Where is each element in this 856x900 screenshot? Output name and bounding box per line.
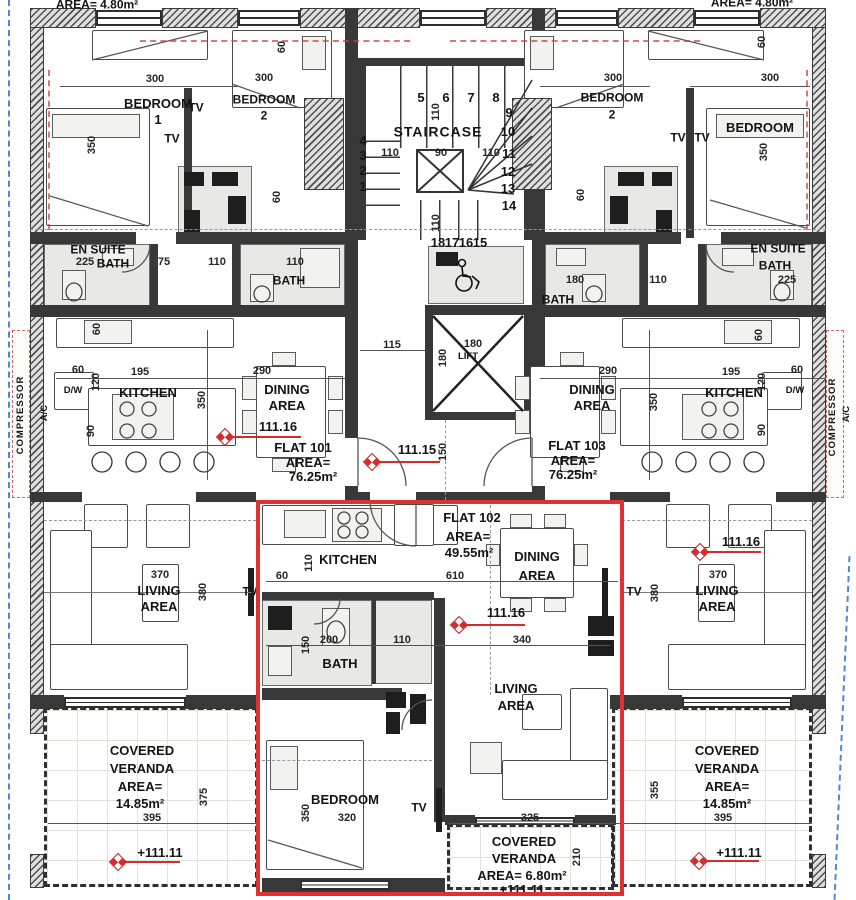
stair-step-number: 2 [359, 164, 366, 178]
wall [640, 244, 648, 310]
dim-label: 115 [383, 340, 401, 352]
dim-label: 60 [791, 365, 803, 377]
insulation-dash [450, 40, 700, 42]
dim-label: 395 [143, 813, 161, 825]
stair-step-number: 3 [359, 149, 366, 163]
stair-step-number: 17 [445, 236, 459, 250]
appliance [436, 252, 458, 266]
dim-label: 370 [151, 570, 169, 582]
room-label-living: LIVING [695, 584, 738, 598]
veranda-corner-pier [30, 854, 44, 888]
dim-label: 60 [72, 365, 84, 377]
wall [176, 232, 345, 244]
wall-core-left [345, 8, 358, 438]
dim-label: 60 [92, 323, 104, 335]
sofa [50, 644, 188, 690]
property-boundary-right [833, 556, 850, 900]
dim-label: 290 [253, 366, 271, 378]
flat-name-label: FLAT 101 [274, 441, 332, 455]
wall [776, 492, 826, 502]
dim-label: 120 [91, 373, 103, 391]
stair-step-number: 13 [501, 182, 515, 196]
dim-label: 195 [722, 367, 740, 379]
room-label-veranda: VERANDA [110, 762, 174, 776]
elevation-marker-line [378, 461, 440, 463]
elevation-marker-line [706, 551, 761, 553]
dim-line [60, 86, 240, 87]
appliance [212, 172, 238, 186]
room-label-bedroom: BEDROOM [726, 121, 794, 135]
wall-pier [618, 8, 694, 28]
wall [545, 305, 826, 317]
level-label: 111.16 [722, 535, 760, 549]
chair [328, 376, 343, 400]
level-label: +111.11 [137, 846, 182, 860]
flat102-boundary [256, 500, 624, 896]
veranda-door-window [682, 697, 792, 708]
room-label-bedroom1: BEDROOM [124, 97, 192, 111]
wall-pier [300, 8, 420, 28]
stair-step-number: 16 [459, 236, 473, 250]
chair [515, 376, 530, 400]
dim-label: 110 [381, 148, 399, 160]
window [556, 10, 618, 26]
dim-label: 180 [464, 339, 482, 351]
chair [272, 352, 296, 366]
room-label-ensuite: BATH [97, 258, 129, 271]
wall-pier [486, 8, 556, 28]
wall [196, 492, 256, 502]
chair [515, 410, 530, 434]
dim-label: 60 [576, 189, 588, 201]
room-label-living: AREA [699, 600, 736, 614]
elevation-marker-line [231, 436, 301, 438]
ac-label-left: A/C [40, 405, 50, 421]
armchair [666, 504, 710, 548]
tv-label: TV [670, 132, 685, 145]
stair-step-number: 7 [467, 91, 474, 105]
room-label-ensuite: EN SUITE [750, 243, 805, 256]
dim-label: 380 [198, 583, 210, 601]
elevation-marker-line [124, 861, 180, 863]
flat-area-value: 76.25m² [289, 470, 337, 484]
compressor-label-right: COMPRESSOR [828, 378, 838, 457]
stair-step-number: 10 [501, 125, 515, 139]
dim-label: 300 [146, 74, 164, 86]
appliance [618, 172, 644, 186]
stair-step-number: 12 [501, 165, 515, 179]
dim-label: 350 [759, 143, 771, 161]
room-label-veranda: AREA= [118, 780, 162, 794]
dishwasher-label: D/W [64, 386, 82, 396]
room-label-dining: DINING [569, 383, 615, 397]
wall [698, 244, 706, 310]
dim-label: 380 [650, 584, 662, 602]
dim-label: 90 [757, 424, 769, 436]
bed-pillow [52, 114, 140, 138]
dim-label: 110 [208, 257, 226, 269]
room-label-kitchen: KITCHEN [705, 386, 763, 400]
stove [682, 394, 744, 440]
exterior-wall-left [30, 8, 44, 702]
stair-step-number: 14 [502, 199, 516, 213]
wall-veranda-pier [186, 695, 258, 709]
room-label-living: AREA [141, 600, 178, 614]
flat-area-label: AREA= [551, 454, 595, 468]
dim-label: 290 [599, 366, 617, 378]
dim-label: 350 [197, 391, 209, 409]
wall-pier [760, 8, 826, 28]
dim-label: 300 [761, 73, 779, 85]
chair [242, 410, 257, 434]
stair-step-number: 4 [359, 134, 366, 148]
stair-step-number: 18 [431, 236, 445, 250]
tv-label: TV [626, 586, 641, 599]
tv-label: TV [188, 102, 203, 115]
room-label-kitchen: KITCHEN [119, 386, 177, 400]
dim-label: 150 [438, 443, 450, 461]
wall [150, 244, 158, 310]
dim-label: 110 [649, 275, 667, 287]
level-label: 111.15 [398, 443, 436, 457]
stair-step-number: 6 [442, 91, 449, 105]
veranda-corner-pier [812, 854, 826, 888]
tv-label: TV [694, 132, 709, 145]
dim-label: 60 [757, 36, 769, 48]
wall-veranda-pier [792, 695, 826, 709]
wall-bedroom-divider-right [686, 88, 694, 238]
chair [560, 352, 584, 366]
lift-label: LIFT [458, 352, 478, 362]
dim-line [540, 86, 650, 87]
insulation-dash [48, 70, 50, 230]
dim-label: 225 [76, 257, 94, 269]
dim-label: 355 [650, 781, 662, 799]
toilet [250, 274, 274, 302]
site-area-note-right: AREA= 4.80m² [711, 0, 793, 9]
stair-step-number: 5 [417, 91, 424, 105]
flat-area-value: 76.25m² [549, 468, 597, 482]
appliance [652, 172, 672, 186]
dim-label: 110 [482, 148, 500, 160]
toilet [582, 274, 606, 302]
dim-label: 60 [277, 41, 289, 53]
wall [30, 492, 82, 502]
room-label-dining: AREA [574, 399, 611, 413]
flat-name-label: FLAT 103 [548, 439, 606, 453]
room-label-bedroom2: BEDROOM [581, 92, 644, 105]
window [420, 10, 486, 26]
flat-area-label: AREA= [286, 456, 330, 470]
dim-label: 350 [87, 136, 99, 154]
dim-label: 90 [86, 425, 98, 437]
staircase-label: STAIRCASE [394, 125, 483, 140]
dim-label: 350 [649, 393, 661, 411]
dim-label: 90 [435, 148, 447, 160]
room-label-bath: BATH [542, 294, 574, 307]
stair-step-number: 15 [473, 236, 487, 250]
chair [242, 376, 257, 400]
armchair [146, 504, 190, 548]
dim-label: 60 [754, 329, 766, 341]
stove [112, 394, 174, 440]
sink [556, 248, 586, 266]
room-label-veranda: COVERED [695, 744, 759, 758]
window [238, 10, 300, 26]
wardrobe [92, 30, 208, 60]
appliance [228, 196, 246, 224]
wall [30, 305, 345, 317]
dim-label: 370 [709, 570, 727, 582]
level-label: +111.11 [716, 846, 761, 860]
room-label-living: LIVING [137, 584, 180, 598]
wardrobe [304, 98, 344, 190]
site-area-note-left: AREA= 4.80m² [56, 0, 138, 11]
veranda-door-window [64, 697, 186, 708]
insulation-dash [806, 70, 808, 230]
dim-label: 110 [431, 214, 443, 232]
stair-step-number: 1 [359, 180, 366, 194]
shower [300, 248, 340, 288]
exterior-wall-right [812, 8, 826, 702]
level-label: 111.16 [259, 420, 297, 434]
wall [232, 244, 240, 310]
room-label-bath: BATH [273, 275, 305, 288]
sink [722, 248, 754, 266]
chair [601, 410, 616, 434]
dim-label: 110 [431, 103, 443, 121]
dim-label: 75 [158, 257, 170, 269]
dim-label: 180 [438, 349, 450, 367]
dim-label: 195 [131, 367, 149, 379]
wardrobe [648, 30, 764, 60]
tv-label: TV [164, 133, 179, 146]
wall-pier [162, 8, 238, 28]
wardrobe [512, 98, 552, 190]
room-label-veranda: COVERED [110, 744, 174, 758]
toilet [62, 270, 86, 300]
dim-label: 110 [286, 257, 304, 269]
floor-plan-canvas: AREA= 4.80m² AREA= 4.80m² STAIRCASE 5 6 … [0, 0, 856, 900]
dim-label: 180 [566, 275, 584, 287]
dim-line [540, 378, 826, 379]
lift-wall-left [425, 315, 433, 415]
room-label-veranda: AREA= [705, 780, 749, 794]
sofa [668, 644, 806, 690]
centerline [30, 229, 826, 230]
dim-label: 300 [604, 73, 622, 85]
room-label-dining: AREA [269, 399, 306, 413]
room-label-bedroom2: 2 [609, 109, 616, 122]
room-label-veranda: 14.85m² [116, 797, 164, 811]
centerline [622, 520, 812, 521]
compressor-label-left: COMPRESSOR [16, 376, 26, 455]
property-boundary-left [8, 0, 10, 900]
dim-line [690, 86, 810, 87]
wall [545, 232, 681, 244]
dishwasher-label: D/W [786, 386, 804, 396]
room-label-ensuite: EN SUITE [70, 244, 125, 257]
window [694, 10, 760, 26]
dim-label: 375 [199, 788, 211, 806]
room-label-bedroom2: BEDROOM [233, 94, 296, 107]
room-label-bedroom1: 1 [154, 113, 161, 127]
appliance [184, 172, 204, 186]
room-label-veranda: 14.85m² [703, 797, 751, 811]
stair-step-number: 9 [505, 106, 512, 120]
dim-label: 60 [272, 191, 284, 203]
room-label-dining: DINING [264, 383, 310, 397]
dim-label: 225 [778, 275, 796, 287]
elevation-marker-line [705, 860, 759, 862]
stair-step-number: 11 [502, 147, 516, 161]
room-label-veranda: VERANDA [695, 762, 759, 776]
appliance [610, 196, 628, 224]
insulation-dash [140, 40, 410, 42]
centerline [44, 520, 256, 521]
dim-label: 300 [255, 73, 273, 85]
window [96, 10, 162, 26]
dim-label: 395 [714, 813, 732, 825]
room-label-bedroom2: 2 [261, 110, 268, 123]
room-label-ensuite: BATH [759, 260, 791, 273]
wall-veranda-pier [30, 695, 64, 709]
lift-wall-top [425, 305, 532, 315]
stair-step-number: 8 [492, 91, 499, 105]
chair [328, 410, 343, 434]
ac-label-right: A/C [842, 406, 852, 422]
